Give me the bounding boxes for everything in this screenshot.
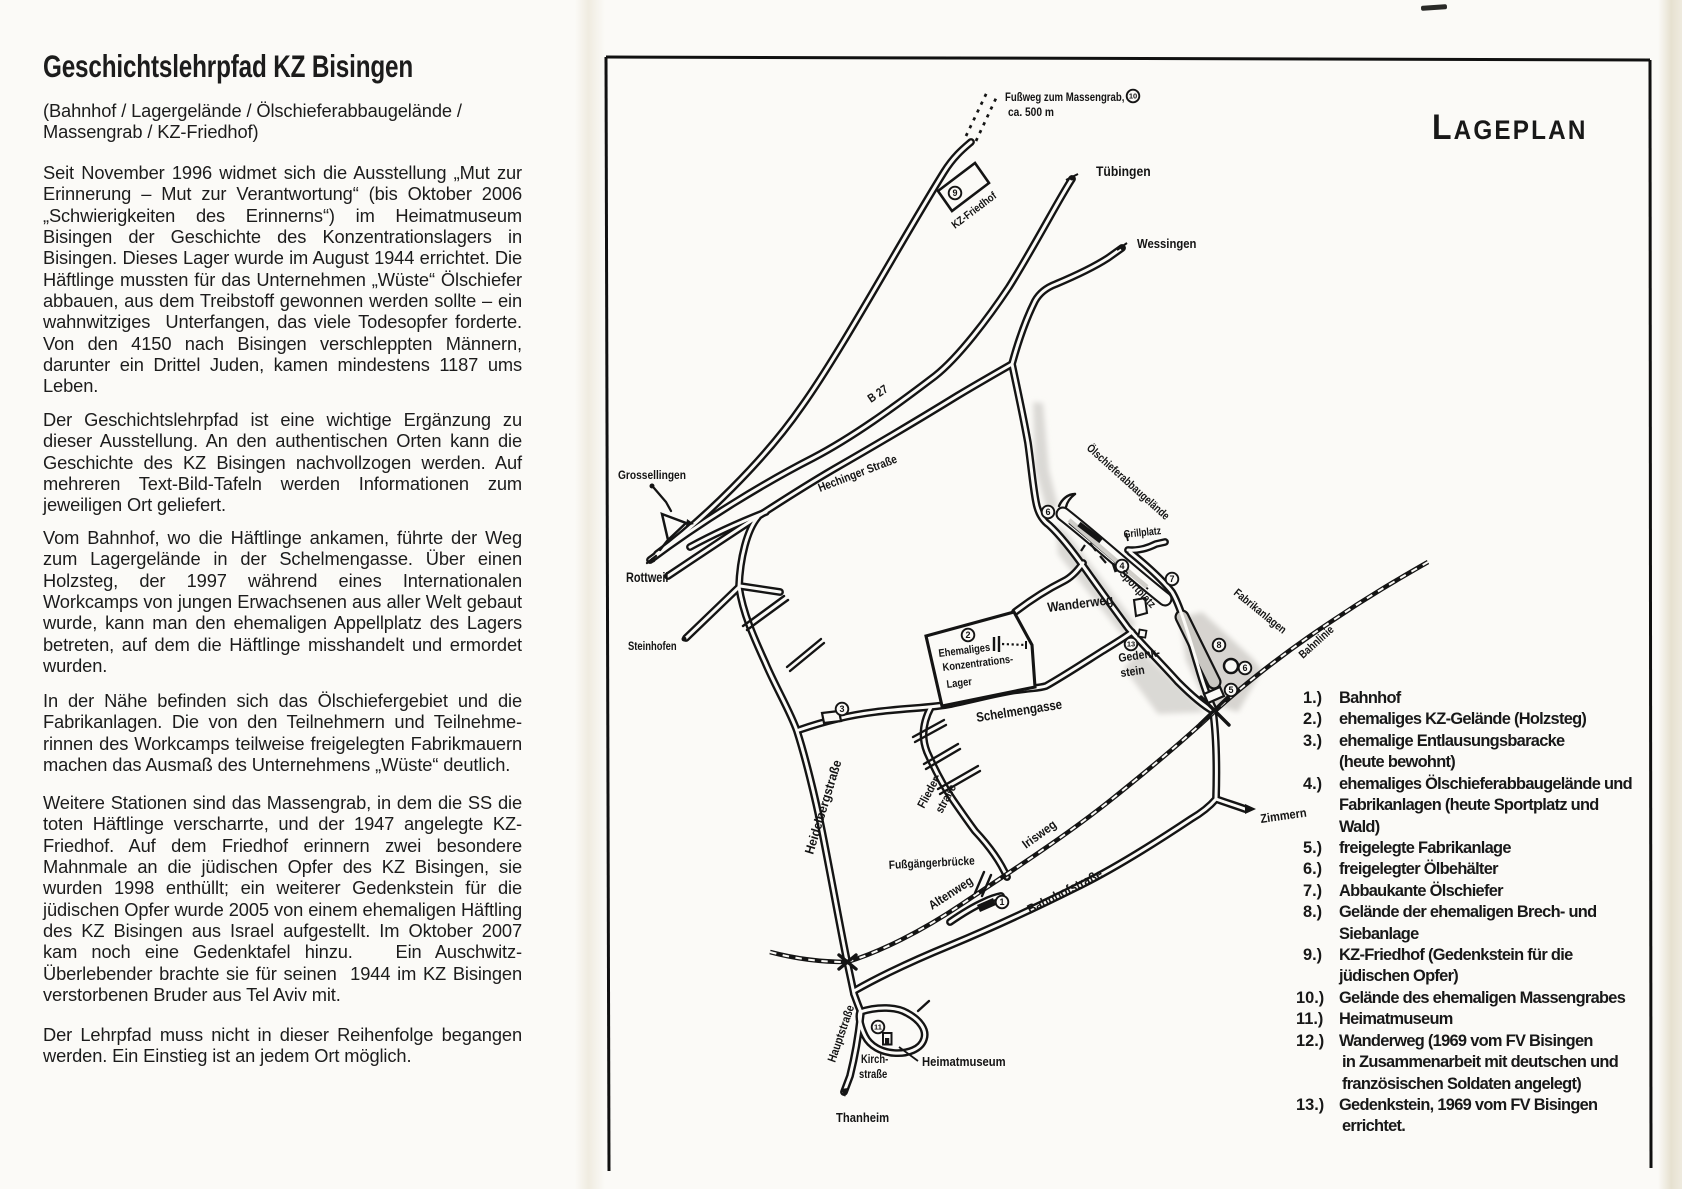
svg-text:7: 7	[1169, 574, 1174, 584]
svg-text:6: 6	[1242, 663, 1247, 673]
svg-text:Ölschieferabbaugelände: Ölschieferabbaugelände	[1084, 441, 1173, 523]
svg-text:8: 8	[1216, 640, 1221, 650]
svg-text:3: 3	[839, 704, 844, 714]
svg-text:10: 10	[1129, 92, 1137, 101]
svg-text:Kirch-: Kirch-	[861, 1053, 889, 1066]
svg-text:Schelmengasse: Schelmengasse	[975, 697, 1063, 725]
svg-text:Irisweg: Irisweg	[1019, 817, 1059, 852]
svg-text:Grossellingen: Grossellingen	[618, 469, 686, 482]
svg-text:ca. 500 m: ca. 500 m	[1008, 106, 1054, 119]
svg-text:5: 5	[1228, 685, 1233, 695]
svg-text:Rottweil: Rottweil	[626, 570, 668, 586]
svg-text:straße: straße	[859, 1068, 887, 1081]
svg-text:Fußgängerbrücke: Fußgängerbrücke	[888, 855, 975, 872]
svg-text:Fabrikanlagen: Fabrikanlagen	[1231, 586, 1289, 636]
svg-text:Thanheim: Thanheim	[836, 1110, 889, 1125]
svg-text:11: 11	[874, 1023, 882, 1032]
svg-text:LAGEPLAN: LAGEPLAN	[1432, 107, 1588, 147]
svg-text:1: 1	[999, 897, 1004, 907]
svg-text:2: 2	[965, 630, 970, 640]
svg-text:Wessingen: Wessingen	[1137, 236, 1196, 251]
svg-text:6: 6	[1045, 507, 1050, 517]
svg-text:13: 13	[1127, 640, 1135, 649]
svg-text:B 27: B 27	[866, 383, 891, 406]
svg-text:Fußweg zum Massengrab,: Fußweg zum Massengrab,	[1005, 91, 1124, 104]
svg-text:Tübingen: Tübingen	[1096, 163, 1151, 179]
svg-text:Heimatmuseum: Heimatmuseum	[922, 1054, 1006, 1069]
svg-text:Steinhofen: Steinhofen	[628, 640, 677, 653]
svg-text:9: 9	[952, 188, 957, 198]
svg-text:Bahnhofstraße: Bahnhofstraße	[1025, 866, 1105, 917]
svg-text:Grillplatz: Grillplatz	[1123, 525, 1162, 541]
